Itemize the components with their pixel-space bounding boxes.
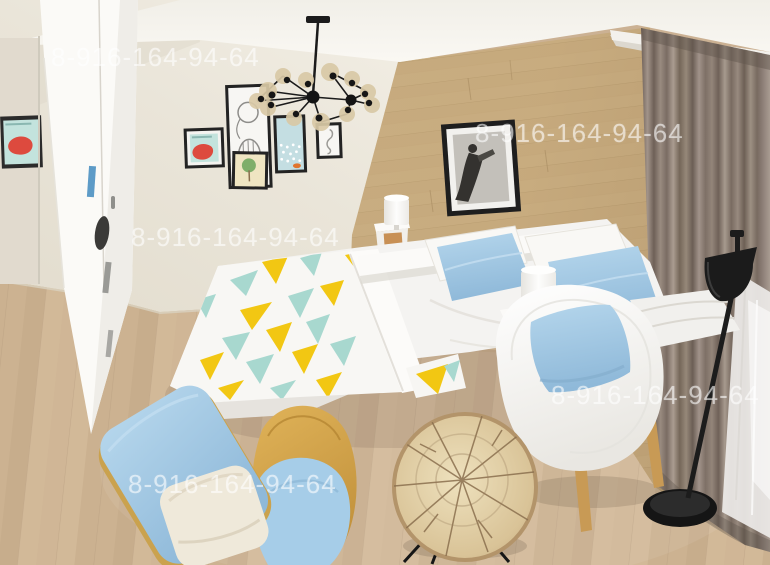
bedroom-render: 8-916-164-94-64 8-916-164-94-64 8-916-16… [0,0,770,565]
armchair-pillow [530,305,630,393]
frame-bird-poster [184,127,225,168]
door-handle [111,196,115,209]
stump-table [394,414,536,564]
foreground-chair-right [252,406,357,565]
armchair-shadow [522,476,662,508]
room-illustration [0,0,770,565]
table-lamp-left [384,195,409,231]
frame-botanical [230,150,269,191]
photo-frame [441,119,521,216]
mirror-reflected-poster [0,115,43,168]
mirror [0,36,43,284]
